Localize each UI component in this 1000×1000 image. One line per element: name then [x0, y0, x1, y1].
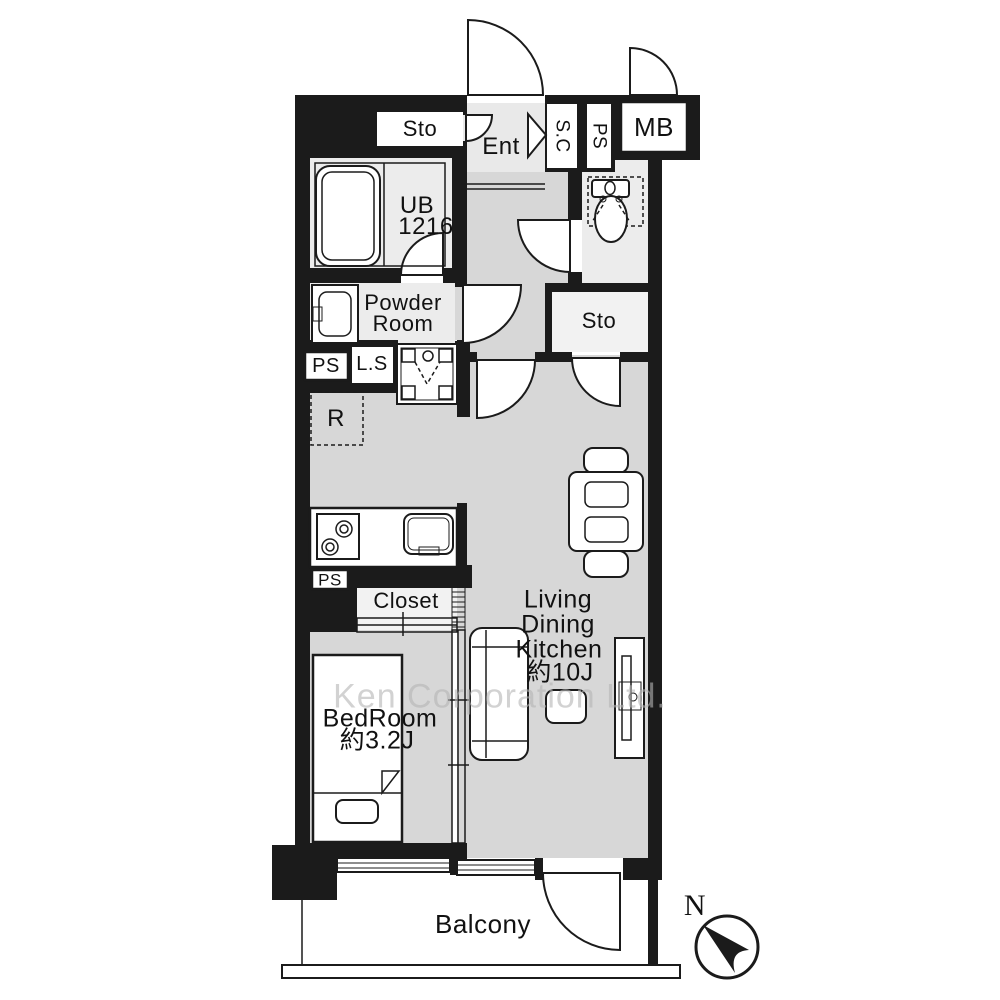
- bedroom-window: [337, 858, 450, 872]
- label-pipe-shaft-top: PS: [590, 123, 609, 149]
- label-linen-storage: L.S: [356, 354, 388, 374]
- label-bedroom-size: 約3.2J: [340, 729, 415, 754]
- label-refrigerator: R: [327, 407, 345, 431]
- label-powder-room-2: Room: [373, 313, 434, 335]
- kitchen-sink: [404, 514, 453, 555]
- label-storage-hall: Sto: [582, 310, 617, 332]
- balcony-slab: [282, 965, 680, 978]
- label-ldk-2: Dining: [521, 613, 595, 638]
- label-shoe-closet: S.C: [553, 119, 572, 152]
- balcony-door: [543, 873, 620, 950]
- meter-box-door: [630, 48, 677, 95]
- watermark: Ken Corporation Ltd.: [333, 678, 667, 717]
- dining-chair-top: [584, 448, 628, 473]
- label-balcony: Balcony: [435, 911, 531, 937]
- label-pipe-shaft-left: PS: [312, 356, 340, 376]
- bathtub: [316, 166, 380, 266]
- label-closet: Closet: [373, 590, 438, 612]
- label-compass-north: N: [684, 891, 706, 921]
- floor-plan-page: Sto Ent S.C PS MB UB 1216 Powder Room PS…: [0, 0, 1000, 1000]
- label-ldk-1: Living: [524, 588, 592, 613]
- label-pipe-shaft-kitchen: PS: [318, 572, 342, 589]
- label-storage-top: Sto: [403, 118, 438, 140]
- compass-icon: [696, 916, 758, 978]
- label-entrance: Ent: [482, 135, 520, 159]
- front-door: [468, 20, 543, 95]
- washer-pan: [397, 344, 457, 404]
- ldk-window: [457, 860, 535, 875]
- stove: [317, 514, 359, 559]
- label-meter-box: MB: [634, 114, 674, 140]
- label-unit-bath-size: 1216: [398, 215, 453, 239]
- dining-chair-bottom: [584, 551, 628, 577]
- pillow: [336, 800, 378, 823]
